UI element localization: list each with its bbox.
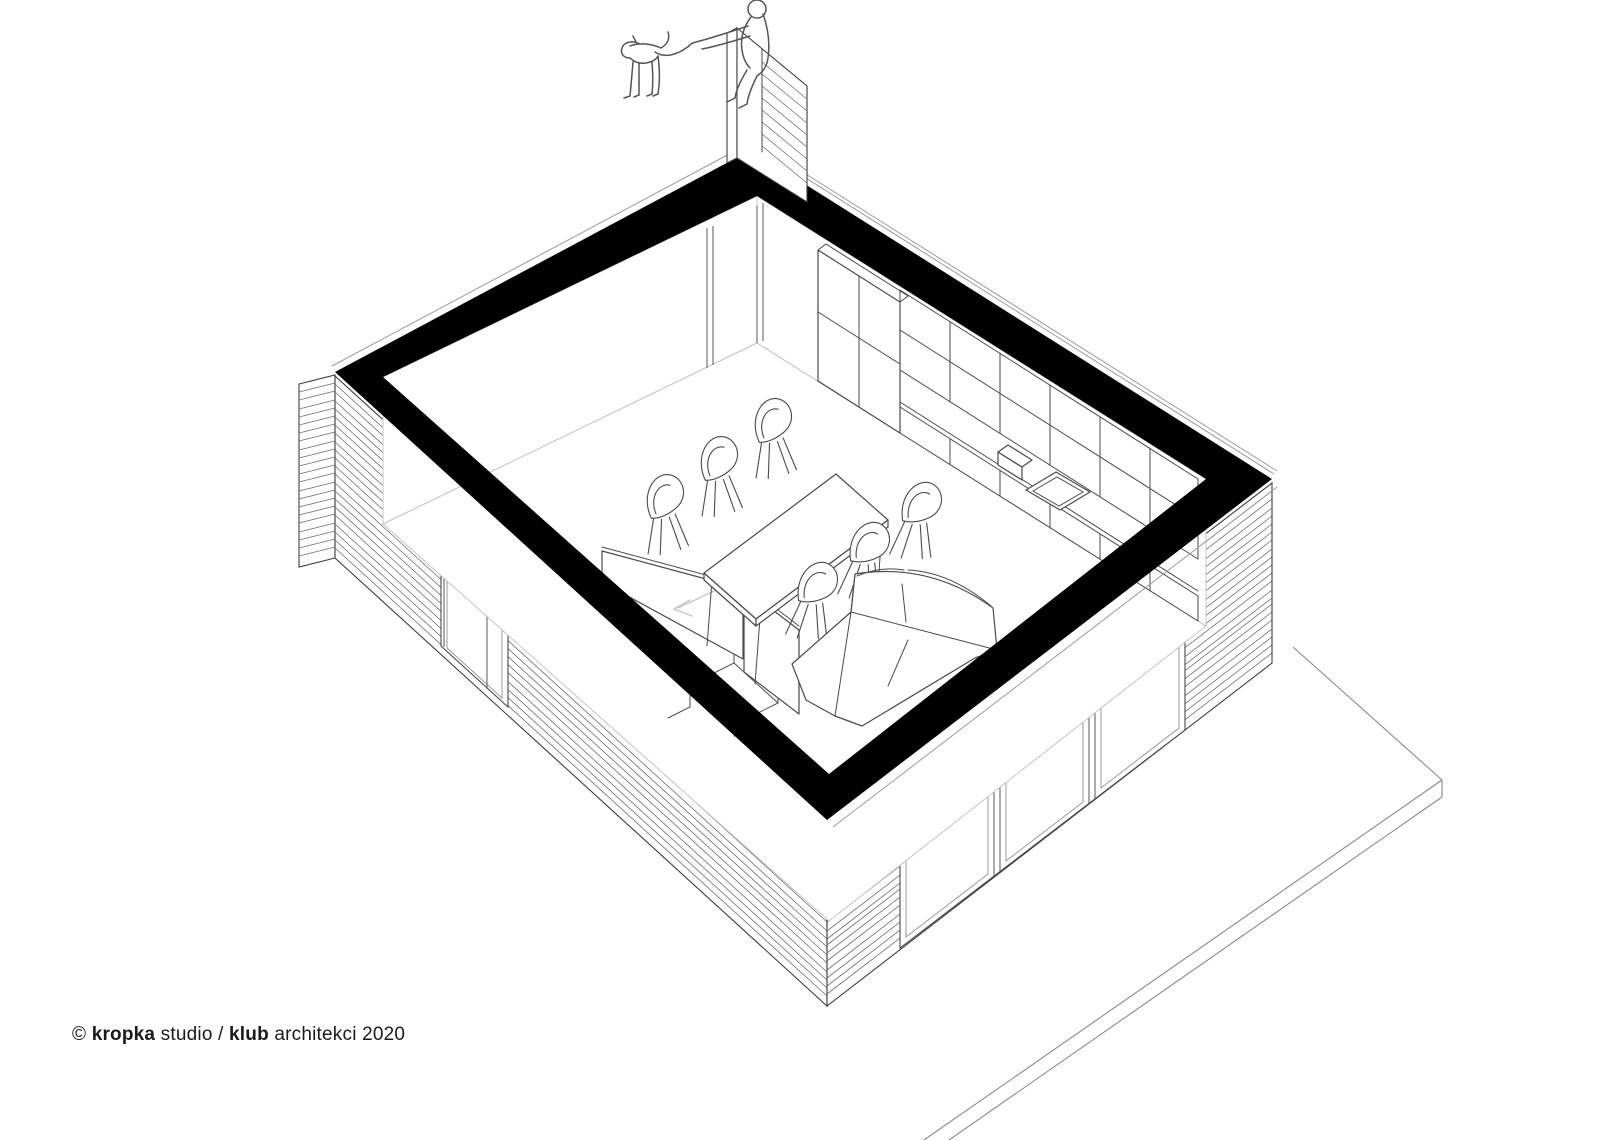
credit-club-name: klub [229,1024,269,1045]
credit-studio-name: kropka [92,1024,156,1045]
axonometric-cutaway-drawing [0,0,1612,1140]
credit-prefix: © [72,1024,92,1045]
architectural-drawing-page: © kropka studio / klub architekci 2020 [0,0,1612,1140]
credit-suffix: architekci 2020 [269,1024,405,1045]
copyright-credit: © kropka studio / klub architekci 2020 [72,1024,405,1046]
facade-corner-return [299,375,335,567]
dog-figure [621,32,668,98]
credit-middle: studio / [155,1024,229,1045]
